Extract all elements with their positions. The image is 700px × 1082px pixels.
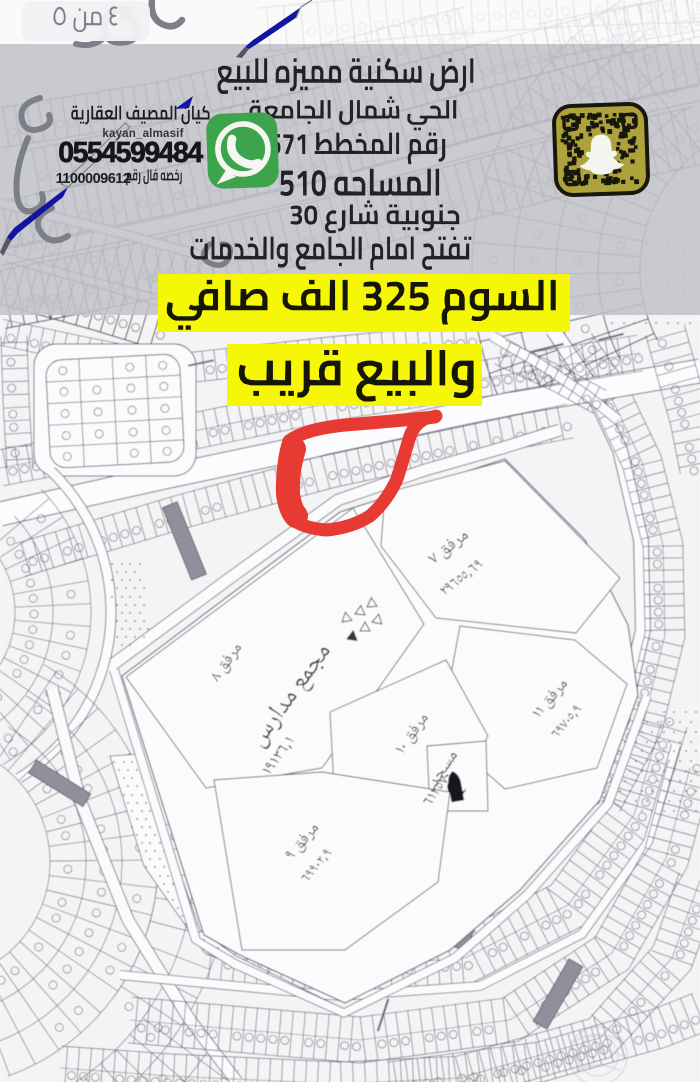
- svg-text:1100009612: 1100009612: [56, 171, 131, 187]
- svg-text:0554599484: 0554599484: [58, 137, 203, 169]
